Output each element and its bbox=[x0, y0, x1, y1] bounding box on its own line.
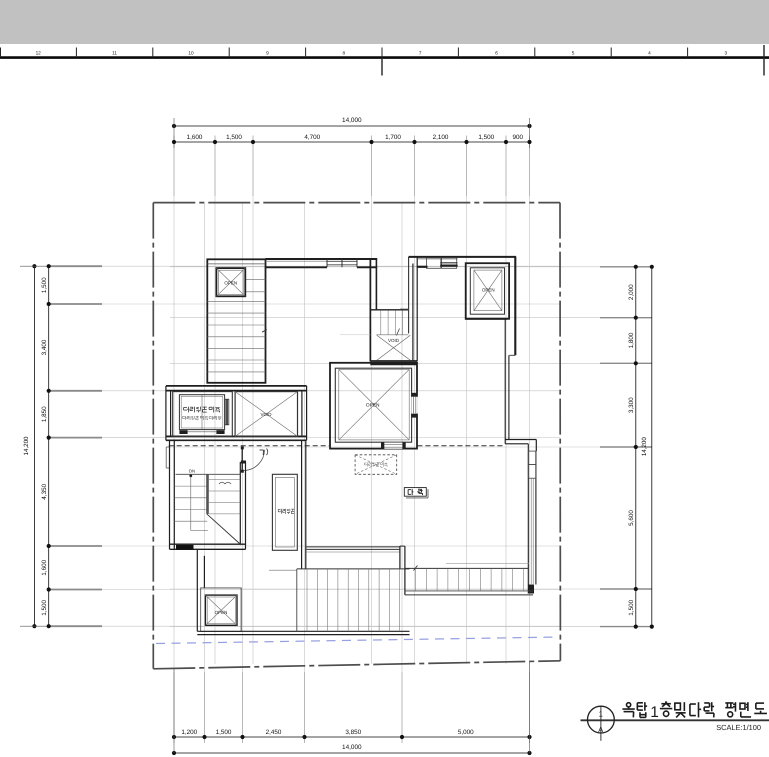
svg-text:10: 10 bbox=[188, 51, 194, 56]
svg-text:1,500: 1,500 bbox=[478, 134, 494, 141]
svg-text:1,700: 1,700 bbox=[385, 134, 401, 141]
svg-text:1,800: 1,800 bbox=[628, 332, 635, 348]
svg-text:3: 3 bbox=[724, 51, 727, 56]
svg-text:1,500: 1,500 bbox=[41, 277, 48, 293]
svg-text:14,000: 14,000 bbox=[342, 744, 362, 751]
svg-text:OPEN: OPEN bbox=[482, 288, 495, 293]
svg-text:3,850: 3,850 bbox=[345, 729, 361, 736]
svg-text:3,300: 3,300 bbox=[628, 397, 635, 413]
svg-text:A: A bbox=[598, 725, 603, 734]
svg-text:7: 7 bbox=[419, 51, 422, 56]
svg-text:2,000: 2,000 bbox=[628, 284, 635, 300]
svg-text:6: 6 bbox=[495, 51, 498, 56]
svg-text:11: 11 bbox=[112, 51, 117, 56]
svg-text:1: 1 bbox=[599, 710, 603, 719]
svg-text:1,500: 1,500 bbox=[41, 600, 48, 616]
svg-text:4,350: 4,350 bbox=[41, 483, 48, 499]
svg-text:12: 12 bbox=[36, 51, 42, 56]
svg-text:SCALE:1/100: SCALE:1/100 bbox=[716, 723, 761, 732]
svg-text:1,600: 1,600 bbox=[41, 559, 48, 575]
svg-text:4: 4 bbox=[648, 51, 651, 56]
svg-text:VOID: VOID bbox=[260, 412, 272, 417]
svg-text:5: 5 bbox=[572, 51, 575, 56]
svg-text:1,500: 1,500 bbox=[628, 599, 635, 615]
svg-text:1,500: 1,500 bbox=[216, 729, 232, 736]
svg-text:OPEN: OPEN bbox=[366, 402, 380, 408]
svg-text:9: 9 bbox=[266, 51, 269, 56]
svg-text:5,000: 5,000 bbox=[458, 729, 474, 736]
svg-text:14,200: 14,200 bbox=[23, 436, 30, 455]
svg-text:14,000: 14,000 bbox=[342, 117, 362, 124]
svg-text:5,600: 5,600 bbox=[628, 510, 635, 526]
svg-text:OPEN: OPEN bbox=[215, 610, 228, 615]
svg-text:3,400: 3,400 bbox=[41, 339, 48, 355]
svg-text:8: 8 bbox=[342, 51, 345, 56]
svg-text:900: 900 bbox=[512, 134, 523, 141]
svg-text:1,200: 1,200 bbox=[181, 729, 197, 736]
svg-text:VOID: VOID bbox=[388, 338, 400, 343]
svg-text:1,850: 1,850 bbox=[41, 406, 48, 422]
svg-text:2,100: 2,100 bbox=[433, 134, 449, 141]
svg-text:OPEN: OPEN bbox=[224, 280, 237, 285]
svg-text:DN: DN bbox=[189, 468, 195, 473]
svg-text:2,450: 2,450 bbox=[266, 729, 282, 736]
svg-text:14,200: 14,200 bbox=[641, 437, 648, 456]
svg-text:4,700: 4,700 bbox=[304, 134, 320, 141]
svg-text:1,600: 1,600 bbox=[187, 134, 203, 141]
svg-text:1,500: 1,500 bbox=[226, 134, 242, 141]
svg-text:1: 1 bbox=[650, 704, 659, 721]
